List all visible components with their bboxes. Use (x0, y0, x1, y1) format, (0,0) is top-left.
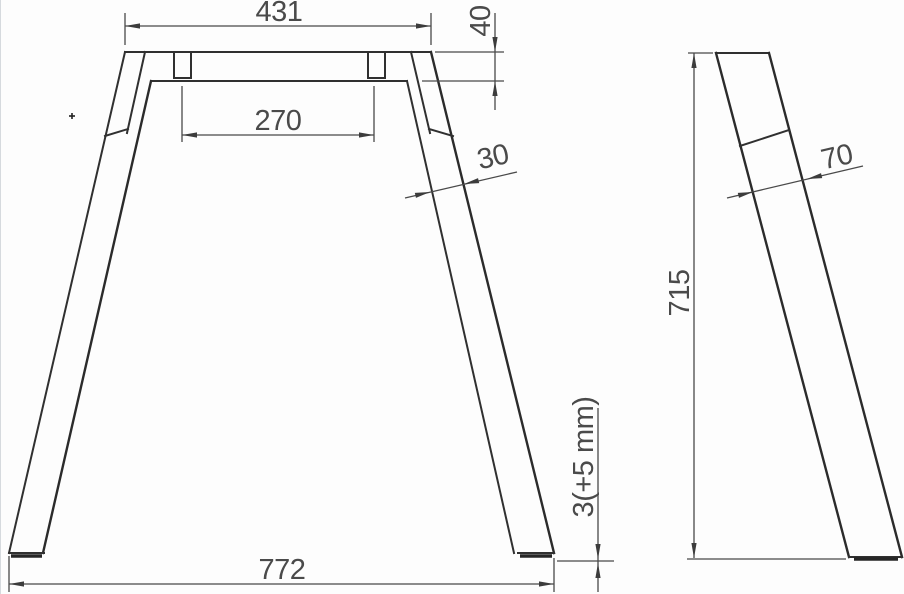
dim-label-715: 715 (664, 270, 696, 317)
arrowhead (359, 132, 374, 137)
left-leg-inner-edge (43, 81, 151, 553)
bracket-left (174, 52, 191, 78)
dim-top-width: 431 (125, 0, 431, 45)
left-leg-outer-edge (9, 52, 125, 553)
dim-bracket-spacing: 270 (182, 86, 374, 142)
side-leg-back-edge (769, 53, 902, 557)
arrowhead (492, 81, 497, 96)
arrowhead (182, 132, 197, 137)
right-leg-outer-edge (431, 52, 554, 553)
dim-label-30: 30 (474, 138, 512, 176)
dim-apron-height: 40 (422, 5, 504, 110)
arrowhead (806, 173, 822, 181)
side-view-leg (716, 53, 902, 559)
arrowhead (463, 178, 479, 186)
cad-drawing-canvas: 431 40 270 30 70 715 (0, 0, 904, 594)
arrowhead (691, 53, 696, 68)
arrowhead (415, 189, 431, 197)
arrowhead (691, 543, 696, 558)
side-leg-front-edge (716, 53, 849, 557)
dim-label-40: 40 (465, 5, 497, 36)
dim-base-width: 772 (9, 554, 554, 592)
right-leg-sleeve-edge (411, 52, 430, 133)
dim-overall-height: 715 (664, 53, 846, 559)
dim-floor-gap: 3(+5 mm) (557, 397, 614, 592)
arrowhead (125, 23, 140, 28)
arrowhead (492, 37, 497, 52)
left-leg-joint-line (105, 129, 128, 136)
dim-label-431: 431 (256, 0, 303, 28)
arrowhead (595, 544, 600, 559)
technical-drawing: 431 40 270 30 70 715 (1, 0, 904, 594)
bracket-right (368, 52, 385, 78)
dim-label-70: 70 (818, 138, 856, 176)
arrowhead (595, 563, 600, 578)
dim-label-772: 772 (259, 554, 306, 586)
dim-label-270: 270 (255, 105, 302, 137)
arrowhead (416, 23, 431, 28)
arrowhead (539, 581, 554, 586)
reference-cross-marker (69, 113, 75, 119)
arrowhead (9, 581, 24, 586)
dim-label-floor-gap: 3(+5 mm) (568, 397, 600, 518)
side-leg-joint-line (740, 130, 789, 146)
